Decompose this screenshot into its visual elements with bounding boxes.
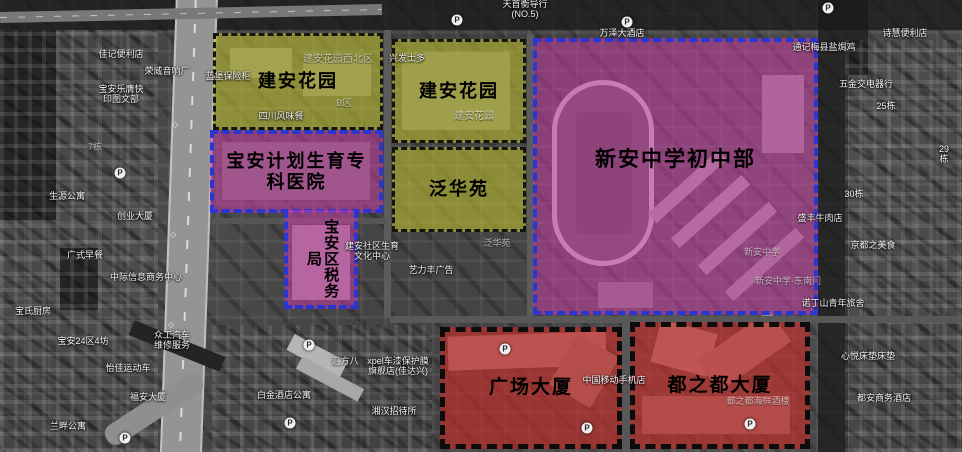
- map-label: 新安中学·东南门: [755, 276, 821, 286]
- map-label: 都安商务酒店: [857, 393, 911, 403]
- city-blocks: [212, 325, 432, 452]
- map-label: 心悦床垫床垫: [841, 351, 895, 361]
- map-label: 通记梅县盐焗鸡: [792, 42, 855, 52]
- region-label: 广场大厦: [489, 377, 573, 399]
- map-label: 京都之美食: [850, 240, 895, 250]
- region-label: 新安中学初中部: [595, 147, 756, 171]
- map-label: 五金交电器行: [839, 79, 893, 89]
- map-label: 白金酒店公寓: [257, 390, 311, 400]
- map-label: 盛丰牛肉店: [797, 213, 842, 223]
- map-label: 四川风味餐: [258, 111, 303, 121]
- parking-icon: P: [120, 433, 131, 444]
- parking-icon: P: [622, 17, 633, 28]
- map-label: 泛华苑: [483, 238, 510, 248]
- map-label: 诗慧便利店: [882, 28, 927, 38]
- parking-icon: P: [745, 419, 756, 430]
- lane-diamond-icon: ◇: [168, 320, 174, 329]
- map-label: 怡佳运动车: [105, 363, 150, 373]
- region-guangchang-building[interactable]: 广场大厦: [440, 327, 622, 449]
- map-label: 荣威音响厂: [144, 66, 189, 76]
- region-duzhidu-building[interactable]: 都之都大厦: [630, 322, 810, 449]
- map-label: 都之都海鲜酒楼: [726, 396, 789, 406]
- map-label: 兴发士多: [389, 53, 425, 63]
- map-label: 诺丁山青年旅舍: [801, 298, 864, 308]
- map-label: 新安中学: [744, 247, 780, 257]
- parking-icon: P: [823, 3, 834, 14]
- map-label: 建安花园西北区: [303, 55, 373, 65]
- map-label: 天首衡导行 (NO.5): [502, 0, 547, 19]
- map-label: 中际信息商务中心: [110, 272, 182, 282]
- parking-icon: P: [452, 15, 463, 26]
- map-label: 广式早餐: [67, 250, 103, 260]
- parking-icon: P: [304, 340, 315, 351]
- map-label: 创业大厦: [117, 211, 153, 221]
- tree-area: [818, 75, 848, 452]
- map-label: 建安社区生育 文化中心: [345, 241, 399, 261]
- map-label: 25栋: [876, 101, 895, 111]
- street: [384, 30, 391, 318]
- region-family-planning-hospital[interactable]: 宝安计划生育专 科医院: [210, 130, 383, 213]
- map-label: 生源公寓: [49, 191, 85, 201]
- region-label: 建安花园: [258, 71, 338, 92]
- map-label: 湘汉招待所: [371, 406, 416, 416]
- lane-diamond-icon: ◇: [170, 230, 176, 239]
- lane-diamond-icon: ◇: [172, 120, 178, 129]
- parking-icon: P: [582, 423, 593, 434]
- parking-icon: P: [115, 168, 126, 179]
- map-label: 艺力丰广告: [408, 265, 453, 275]
- map-label: 兰畔公寓: [50, 421, 86, 431]
- region-fanhua-yuan[interactable]: 泛华苑: [392, 147, 526, 232]
- map-label: 30栋: [844, 189, 863, 199]
- satellite-map[interactable]: ◇ ◇ ◇ 建安花园 建安花园 泛华苑 宝安计划生育专 科医院 宝安区税务局 新…: [0, 0, 962, 452]
- map-label: 佳记便利店: [98, 49, 143, 59]
- map-label: 宝安24区4坊: [57, 336, 108, 346]
- map-label: 蓝堡保险柜: [205, 71, 250, 81]
- region-label: 宝安计划生育专 科医院: [227, 151, 367, 192]
- map-label: B区: [336, 98, 351, 108]
- map-label: xpel车漆保护膜 旗舰店(佳达兴): [367, 356, 429, 376]
- map-label: 万泽大酒店: [599, 28, 644, 38]
- parking-icon: P: [285, 418, 296, 429]
- region-xinan-middle-school[interactable]: 新安中学初中部: [533, 38, 818, 315]
- region-label: 泛华苑: [429, 179, 489, 200]
- region-label: 建安花园: [419, 81, 499, 102]
- map-label: 建安花园: [454, 112, 494, 122]
- parking-icon: P: [500, 344, 511, 355]
- map-label: 宝氏厨房: [15, 306, 51, 316]
- map-label: 宝安乐膺快 印图文部: [98, 84, 143, 104]
- map-label: 7栋: [88, 142, 102, 152]
- map-label: 福安大厦: [130, 392, 166, 402]
- region-label: 宝安区税务局: [304, 212, 339, 305]
- map-label: 汇方八: [331, 356, 358, 366]
- map-label: 众工汽车 维修服务: [154, 330, 190, 350]
- region-label: 都之都大厦: [667, 375, 772, 397]
- map-label: 中国移动手机店: [582, 375, 645, 385]
- map-label: 29栋: [935, 144, 953, 164]
